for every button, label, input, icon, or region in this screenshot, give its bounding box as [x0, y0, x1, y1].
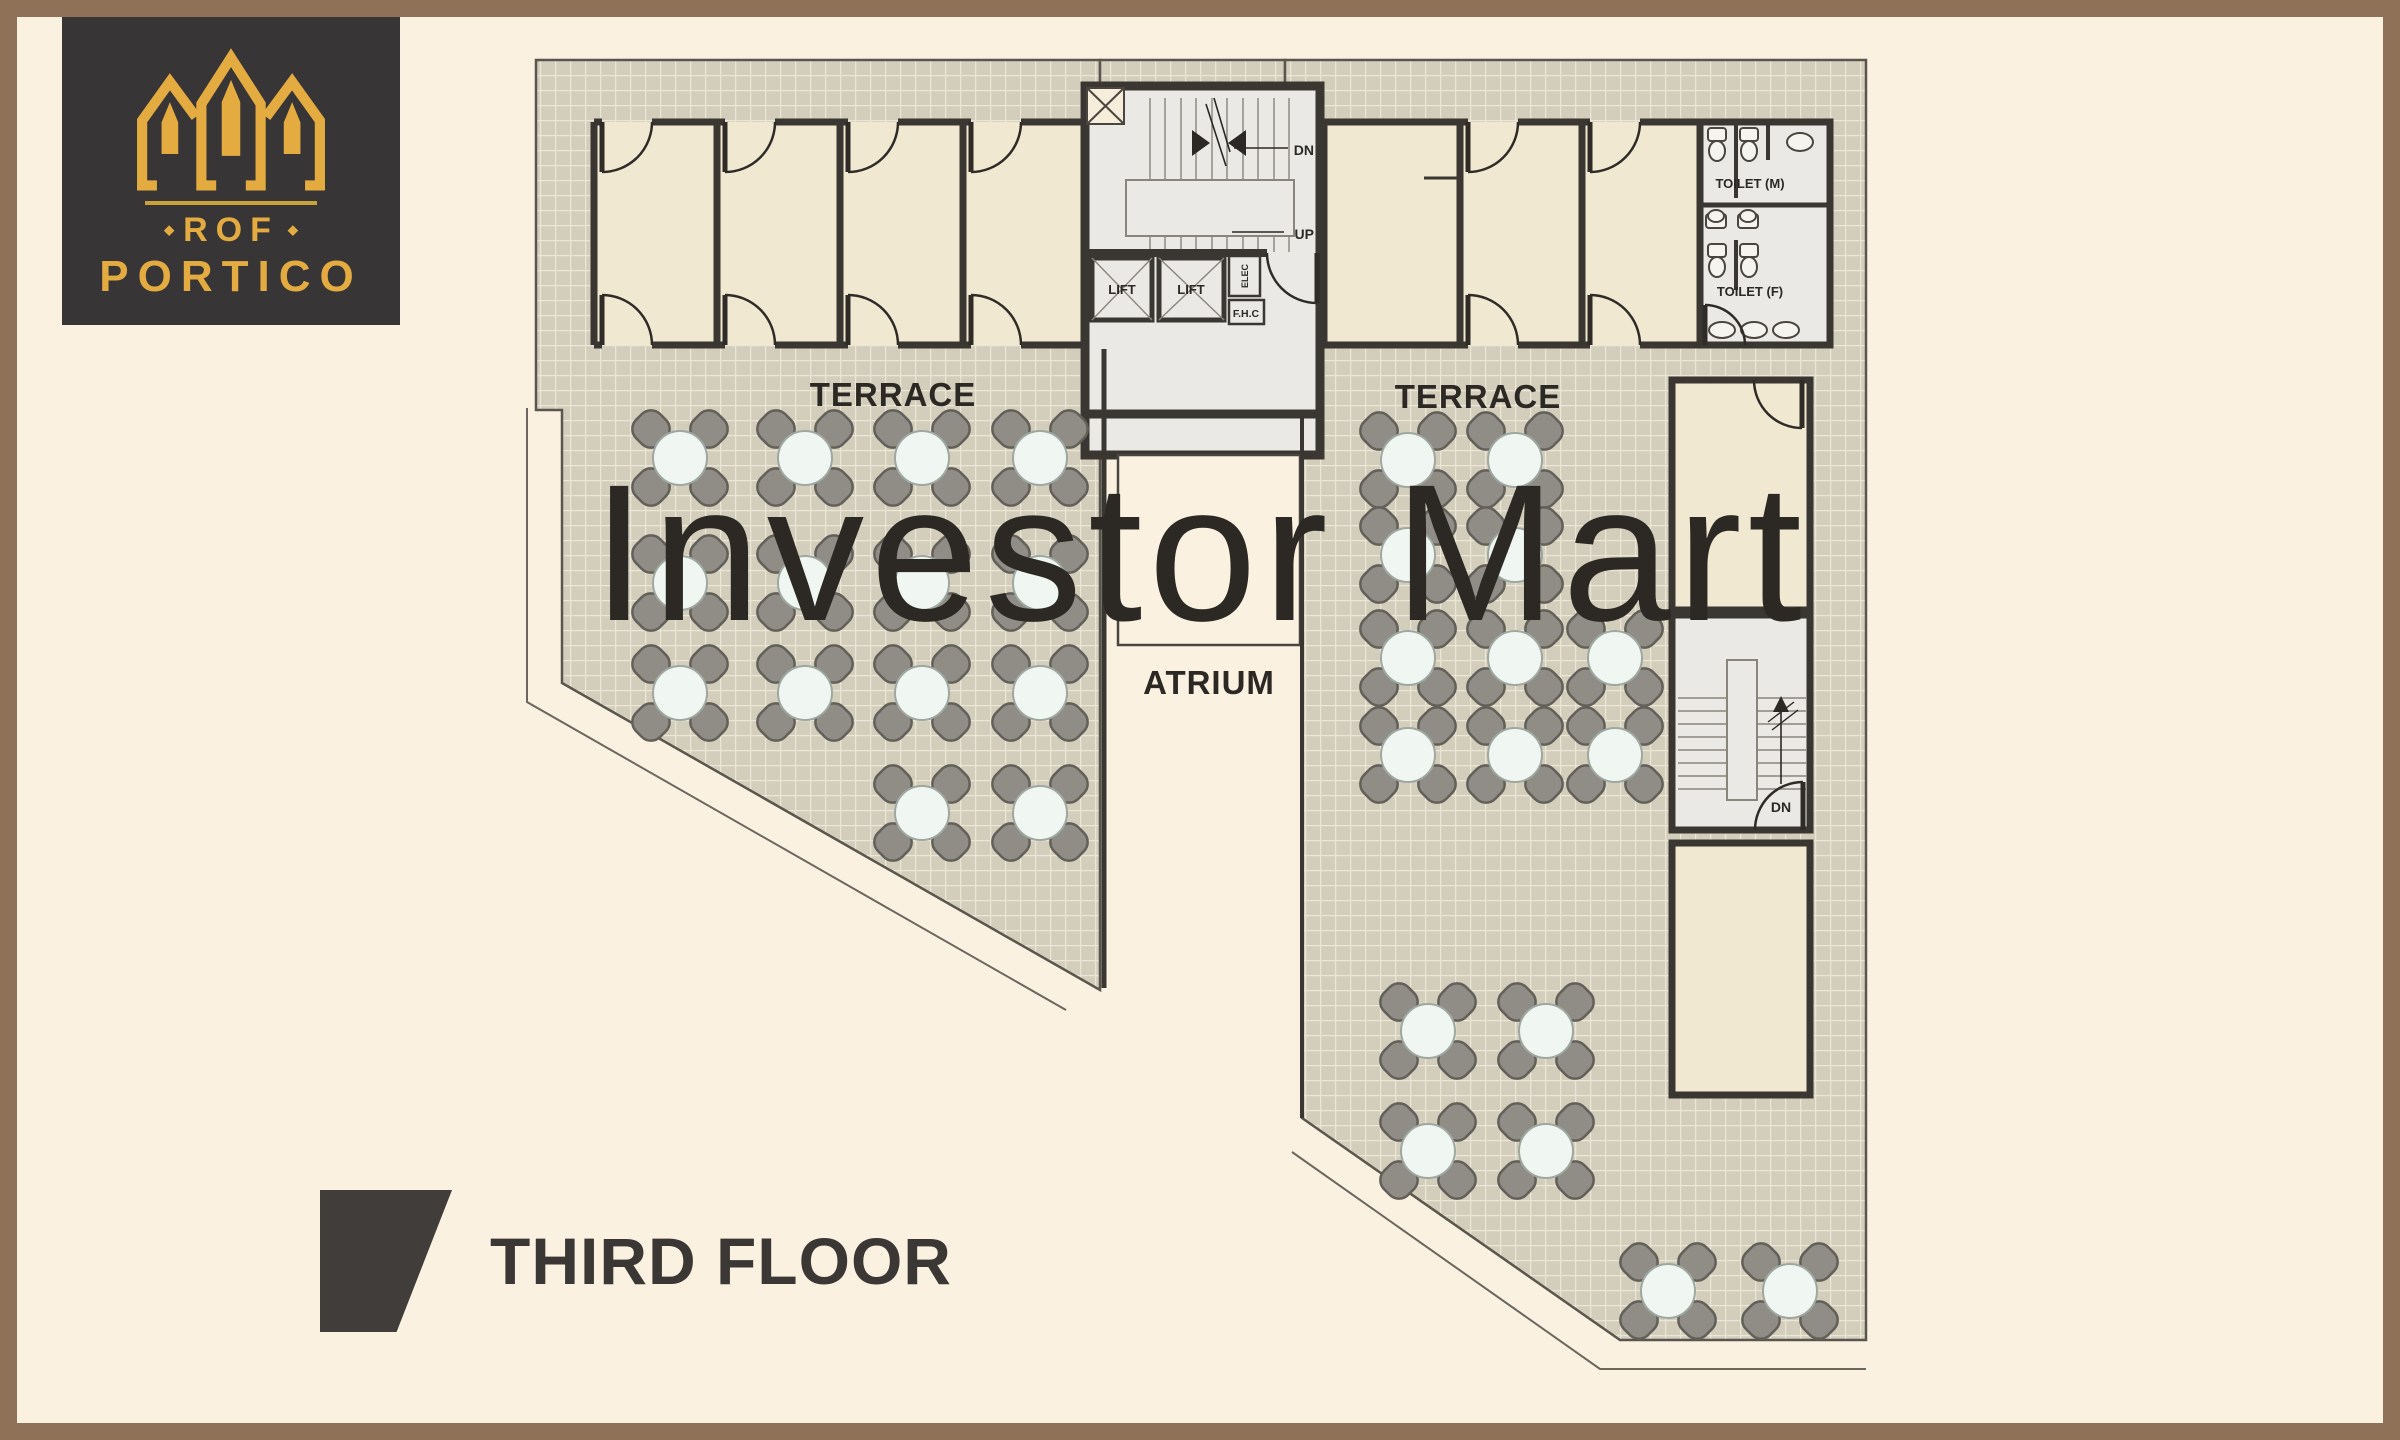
atrium-label: ATRIUM	[1143, 664, 1275, 701]
brand-logo-block: ◆ROF◆ PORTICO	[62, 15, 400, 325]
logo-divider	[145, 201, 317, 205]
stair-lift-core: DN UP LIFT LIFT ELEC F.H.C	[1085, 86, 1320, 455]
core-up-label: UP	[1295, 226, 1314, 242]
svg-text:ELEC: ELEC	[1240, 264, 1250, 289]
toilet-f-label: TOILET (F)	[1717, 284, 1783, 299]
floor-title-marker	[320, 1190, 452, 1332]
fhc-box: F.H.C	[1229, 300, 1264, 324]
lift-1: LIFT	[1092, 258, 1152, 320]
elec-shaft: ELEC	[1229, 256, 1260, 296]
logo-dot-left: ◆	[164, 222, 174, 237]
terrace-right-label: TERRACE	[1395, 378, 1562, 415]
logo-brand-text: ROF	[183, 211, 279, 249]
toilet-block: TOILET (M) TOILET (F)	[1700, 122, 1830, 345]
logo-dot-right: ◆	[288, 222, 298, 237]
rooms-left-group	[594, 122, 1086, 345]
logo-brand-row: ◆ROF◆	[62, 213, 400, 247]
rooms-right-fill	[1324, 122, 1700, 345]
floor-title-block: THIRD FLOOR	[320, 1190, 952, 1332]
right-dn-label: DN	[1771, 799, 1791, 815]
toilet-m-label: TOILET (M)	[1715, 176, 1784, 191]
stair-landing	[1126, 180, 1294, 236]
brand-building-icon	[111, 41, 351, 191]
svg-text:LIFT: LIFT	[1108, 282, 1135, 297]
floor-title-text: THIRD FLOOR	[490, 1223, 952, 1299]
lift-2: LIFT	[1159, 258, 1224, 320]
core-dn-label: DN	[1294, 142, 1314, 158]
svg-text:LIFT: LIFT	[1177, 282, 1204, 297]
watermark-text: Investor Mart	[592, 444, 1808, 662]
rooms-right-group	[1324, 122, 1700, 345]
logo-project-name: PORTICO	[62, 255, 400, 299]
svg-text:F.H.C: F.H.C	[1233, 308, 1260, 320]
terrace-left-label: TERRACE	[810, 376, 977, 413]
right-room-lower	[1672, 843, 1810, 1095]
